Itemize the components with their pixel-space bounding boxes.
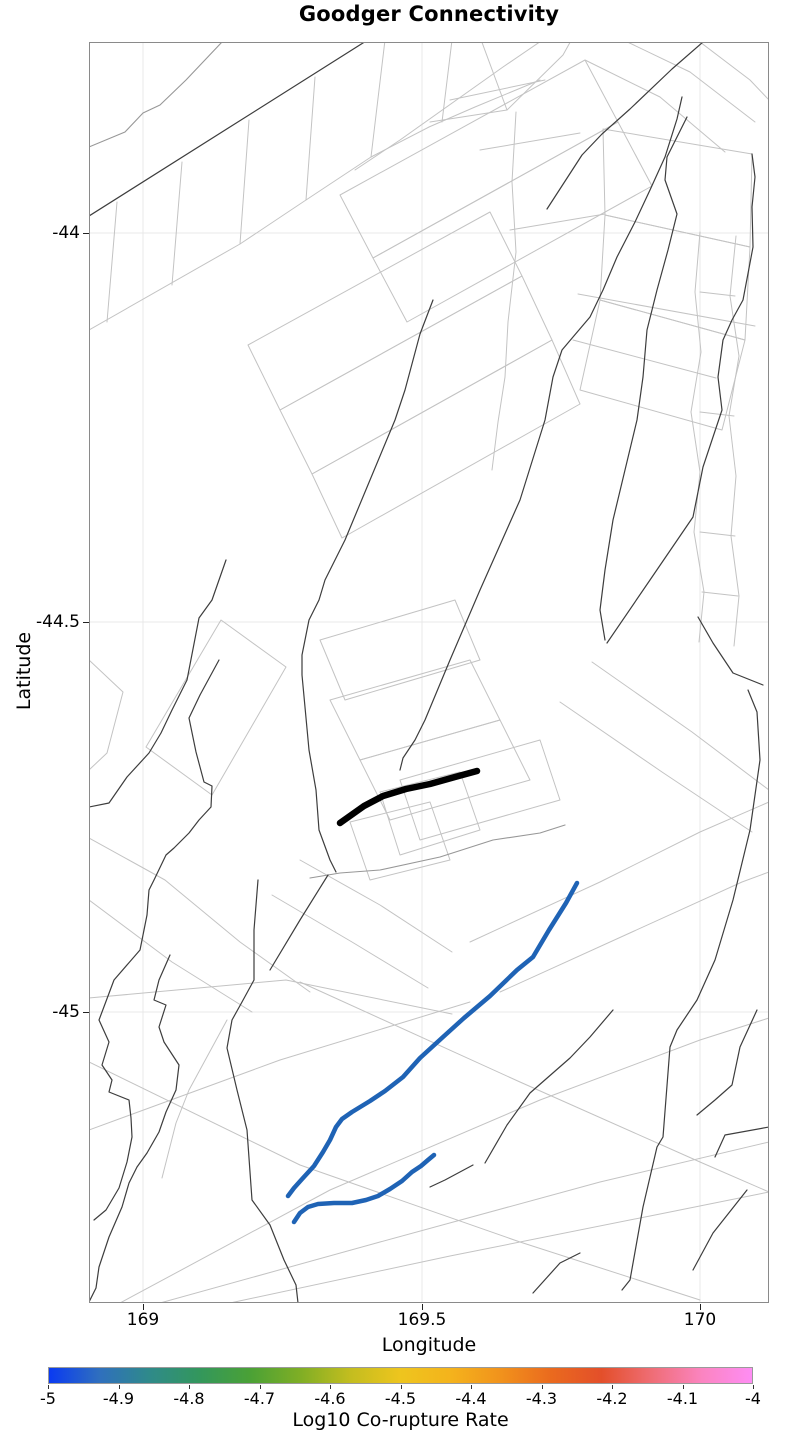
y-tick-mark <box>83 622 89 623</box>
fault-subsection-polygon <box>350 802 450 880</box>
colorbar-tick-label: -4.5 <box>385 1389 416 1408</box>
fault-subsection-outline <box>90 1062 700 1300</box>
fault-map-svg <box>90 43 768 1302</box>
figure: Goodger Connectivity 169169.5170-44-44.5… <box>0 0 800 1449</box>
fault-subsection-outline <box>691 232 704 642</box>
fault-subsection-outline <box>300 982 768 1192</box>
fault-subsection-outline <box>355 43 547 170</box>
fault-subsection-outline <box>617 43 755 122</box>
colorbar-tick-label: -4.4 <box>455 1389 486 1408</box>
colorbar-label: Log10 Co-rupture Rate <box>48 1409 753 1431</box>
fault-subsection-polygon <box>360 720 530 820</box>
fault-subsection-outline <box>240 120 249 244</box>
colorbar-tick-label: -4.2 <box>596 1389 627 1408</box>
fault-subsection-outline <box>592 662 768 790</box>
colorbar-tick-label: -4.6 <box>314 1389 345 1408</box>
fault-trace <box>90 43 374 216</box>
x-tick-label: 169.5 <box>398 1310 447 1330</box>
fault-trace <box>310 825 565 878</box>
chart-title: Goodger Connectivity <box>89 2 769 26</box>
y-axis-label: Latitude <box>13 611 35 731</box>
fault-subsection-outline <box>172 162 182 285</box>
fault-trace <box>400 97 682 770</box>
fault-subsection-outline <box>507 43 573 110</box>
x-tick-label: 169 <box>127 1310 159 1330</box>
fault-subsection-polygon <box>603 129 752 247</box>
fault-subsection-outline <box>90 80 540 330</box>
colorbar-tick-label: -4.7 <box>244 1389 275 1408</box>
colorbar-tick-label: -4.1 <box>667 1389 698 1408</box>
fault-subsection-outline <box>272 895 428 988</box>
colorbar-tick-label: -4 <box>745 1389 761 1408</box>
fault-subsection-polygon <box>248 212 522 410</box>
fault-subsection-outline <box>510 214 605 230</box>
fault-subsection-outline <box>500 872 768 992</box>
fault-subsection-outline <box>300 860 452 952</box>
y-tick-label: -44 <box>52 223 80 243</box>
fault-subsection-outline <box>470 802 768 942</box>
fault-subsection-outline <box>578 294 755 326</box>
fault-subsection-outline <box>306 77 315 200</box>
y-tick-mark <box>83 1012 89 1013</box>
map-plot-area <box>89 42 769 1303</box>
y-tick-mark <box>83 233 89 234</box>
fault-trace <box>485 1010 613 1163</box>
colorbar <box>48 1367 753 1384</box>
fault-trace <box>600 117 687 640</box>
colorbar-tick-label: -4.3 <box>526 1389 557 1408</box>
x-axis-label: Longitude <box>89 1334 769 1356</box>
fault-subsection-outline <box>90 980 452 1014</box>
fault-subsection-outline <box>90 660 123 770</box>
fault-subsection-outline <box>729 236 739 646</box>
y-tick-label: -45 <box>52 1002 80 1022</box>
colorbar-tick-label: -5 <box>40 1389 56 1408</box>
fault-subsection-outline <box>700 532 735 536</box>
fault-subsection-outline <box>107 202 117 322</box>
fault-subsection-polygon <box>280 276 552 474</box>
x-tick-label: 170 <box>684 1310 716 1330</box>
fault-trace <box>698 617 763 685</box>
fault-subsection-outline <box>700 43 768 100</box>
fault-subsection-outline <box>702 592 738 596</box>
colorbar-tick-label: -4.8 <box>173 1389 204 1408</box>
fault-trace <box>430 1165 473 1187</box>
fault-subsection-outline <box>371 43 385 157</box>
fault-subsection-polygon <box>330 660 500 760</box>
fault-trace <box>607 154 755 643</box>
y-tick-label: -44.5 <box>36 612 80 632</box>
fault-trace <box>90 43 222 147</box>
fault-subsection-polygon <box>146 620 286 795</box>
colorbar-tick-label: -4.9 <box>103 1389 134 1408</box>
fault-subsection-outline <box>480 133 580 150</box>
fault-subsection-outline <box>560 702 752 832</box>
fault-subsection-outline <box>120 1018 768 1302</box>
fault-subsection-polygon <box>373 122 652 322</box>
fault-subsection-polygon <box>320 600 480 700</box>
fault-trace <box>697 1010 757 1115</box>
fault-trace <box>227 880 298 1302</box>
fault-subsection-polygon <box>400 740 560 840</box>
fault-subsection-outline <box>442 43 452 122</box>
